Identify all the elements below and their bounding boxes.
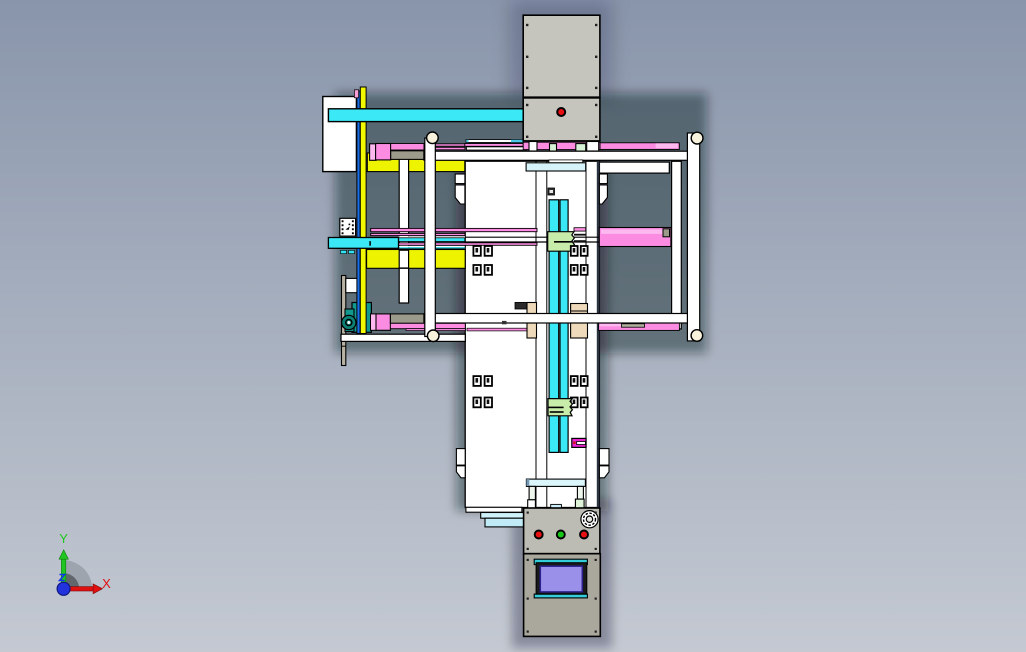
svg-text:X: X xyxy=(102,576,111,591)
svg-text:Y: Y xyxy=(59,531,68,546)
